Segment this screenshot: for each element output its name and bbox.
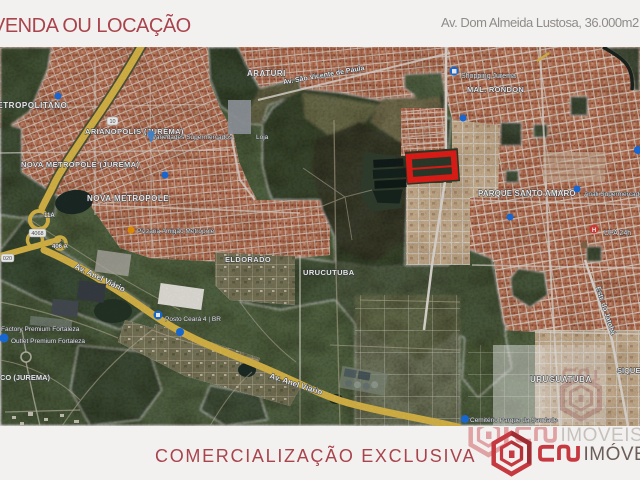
svg-text:VENDA OU LOCAÇÃO: VENDA OU LOCAÇÃO: [0, 13, 191, 37]
svg-text:IMÓVEIS: IMÓVEIS: [561, 424, 640, 446]
svg-text:Av. Dom Almeida Lustosa, 36.00: Av. Dom Almeida Lustosa, 36.000m2: [441, 15, 639, 30]
svg-text:COMERCIALIZAÇÃO EXCLUSIVA: COMERCIALIZAÇÃO EXCLUSIVA: [155, 445, 476, 466]
svg-text:IMÓVEIS: IMÓVEIS: [584, 443, 640, 465]
